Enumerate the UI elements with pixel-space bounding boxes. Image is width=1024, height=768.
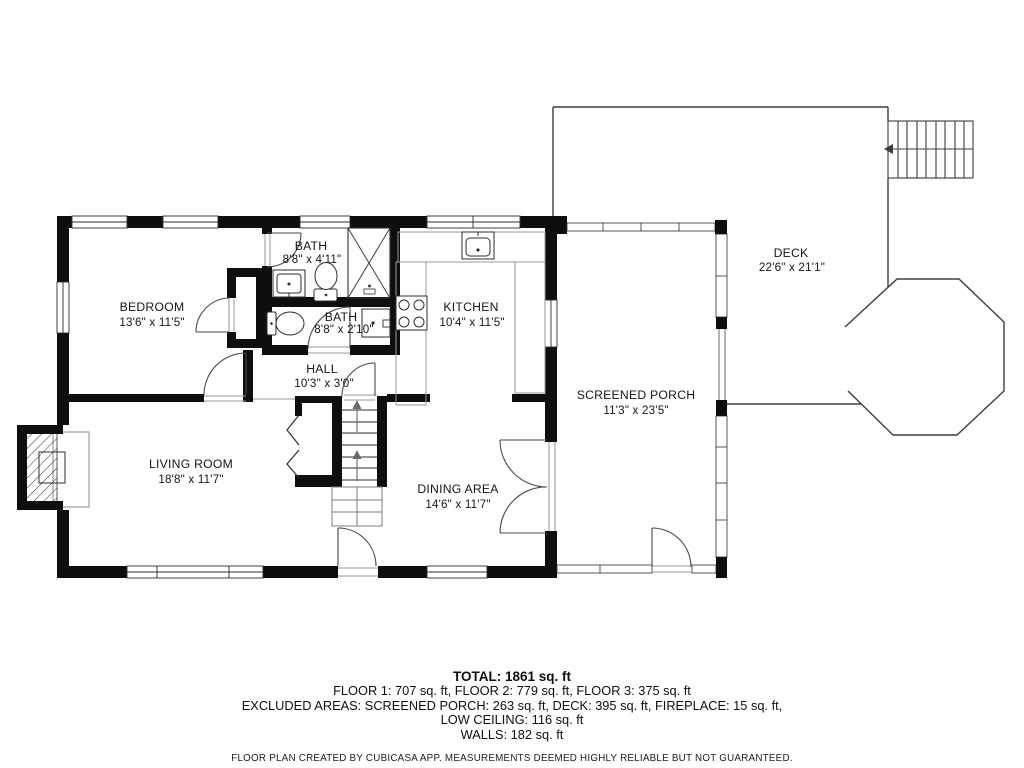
- label-dining-area: DINING AREA: [417, 482, 499, 496]
- label-hall: HALL: [306, 362, 338, 376]
- window: [163, 216, 218, 228]
- label-kitchen-dims: 10'4" x 11'5": [439, 316, 504, 329]
- stairs-lower-flight: [332, 487, 382, 526]
- deck-stairs: [884, 121, 973, 178]
- label-living-room: LIVING ROOM: [149, 457, 233, 471]
- low-ceiling-area: LOW CEILING: 116 sq. ft: [0, 713, 1024, 728]
- kitchen-sink-icon: [462, 232, 494, 259]
- window: [545, 300, 557, 347]
- french-door-north: [500, 440, 547, 487]
- excluded-areas: EXCLUDED AREAS: SCREENED PORCH: 263 sq. …: [0, 699, 1024, 714]
- label-bath-lower: BATH: [325, 310, 358, 324]
- label-bath-upper: BATH: [295, 239, 328, 253]
- label-bedroom-dims: 13'6" x 11'5": [119, 316, 184, 329]
- window: [427, 566, 487, 578]
- label-screened-porch: SCREENED PORCH: [577, 388, 696, 402]
- toilet-icon: [314, 263, 337, 302]
- label-deck-dims: 22'6" x 21'1": [759, 261, 825, 274]
- stair-bottom-door: [338, 528, 376, 566]
- window: [300, 216, 350, 228]
- stairs-up-arrow: [353, 400, 362, 481]
- label-kitchen: KITCHEN: [443, 300, 498, 314]
- window: [127, 566, 263, 578]
- label-bedroom: BEDROOM: [120, 300, 185, 314]
- label-hall-dims: 10'3" x 3'0": [294, 377, 354, 390]
- shower-icon: [348, 228, 390, 298]
- label-living-room-dims: 18'8" x 11'7": [158, 473, 223, 486]
- label-bath-upper-dims: 8'8" x 4'11": [283, 253, 342, 266]
- floor-areas: FLOOR 1: 707 sq. ft, FLOOR 2: 779 sq. ft…: [0, 684, 1024, 699]
- fireplace: [17, 425, 89, 510]
- disclaimer: FLOOR PLAN CREATED BY CUBICASA APP. MEAS…: [0, 753, 1024, 764]
- window: [427, 216, 520, 228]
- bifold-doors: [287, 415, 299, 478]
- label-deck: DECK: [774, 246, 809, 260]
- label-dining-area-dims: 14'6" x 11'7": [425, 498, 490, 511]
- stove-icon: [396, 296, 427, 330]
- toilet-icon: [267, 312, 304, 335]
- walls-area: WALLS: 182 sq. ft: [0, 728, 1024, 743]
- floor-plan: BEDROOM 13'6" x 11'5" BATH 8'8" x 4'11" …: [0, 0, 1024, 660]
- window: [72, 216, 127, 228]
- porch-exterior-door: [652, 528, 691, 567]
- label-bath-lower-dims: 8'8" x 2'10": [314, 323, 374, 336]
- closet-door: [196, 298, 230, 332]
- french-door-south: [500, 487, 547, 533]
- area-summary: TOTAL: 1861 sq. ft FLOOR 1: 707 sq. ft, …: [0, 669, 1024, 764]
- deck-octagon: [845, 279, 1004, 435]
- hearth: [53, 432, 89, 507]
- window: [57, 282, 69, 333]
- label-screened-porch-dims: 11'3" x 23'5": [603, 404, 668, 417]
- bedroom-door: [204, 353, 246, 395]
- sink-icon: [273, 270, 305, 297]
- porch-deck-rail: [719, 329, 725, 400]
- total-area: TOTAL: 1861 sq. ft: [0, 669, 1024, 684]
